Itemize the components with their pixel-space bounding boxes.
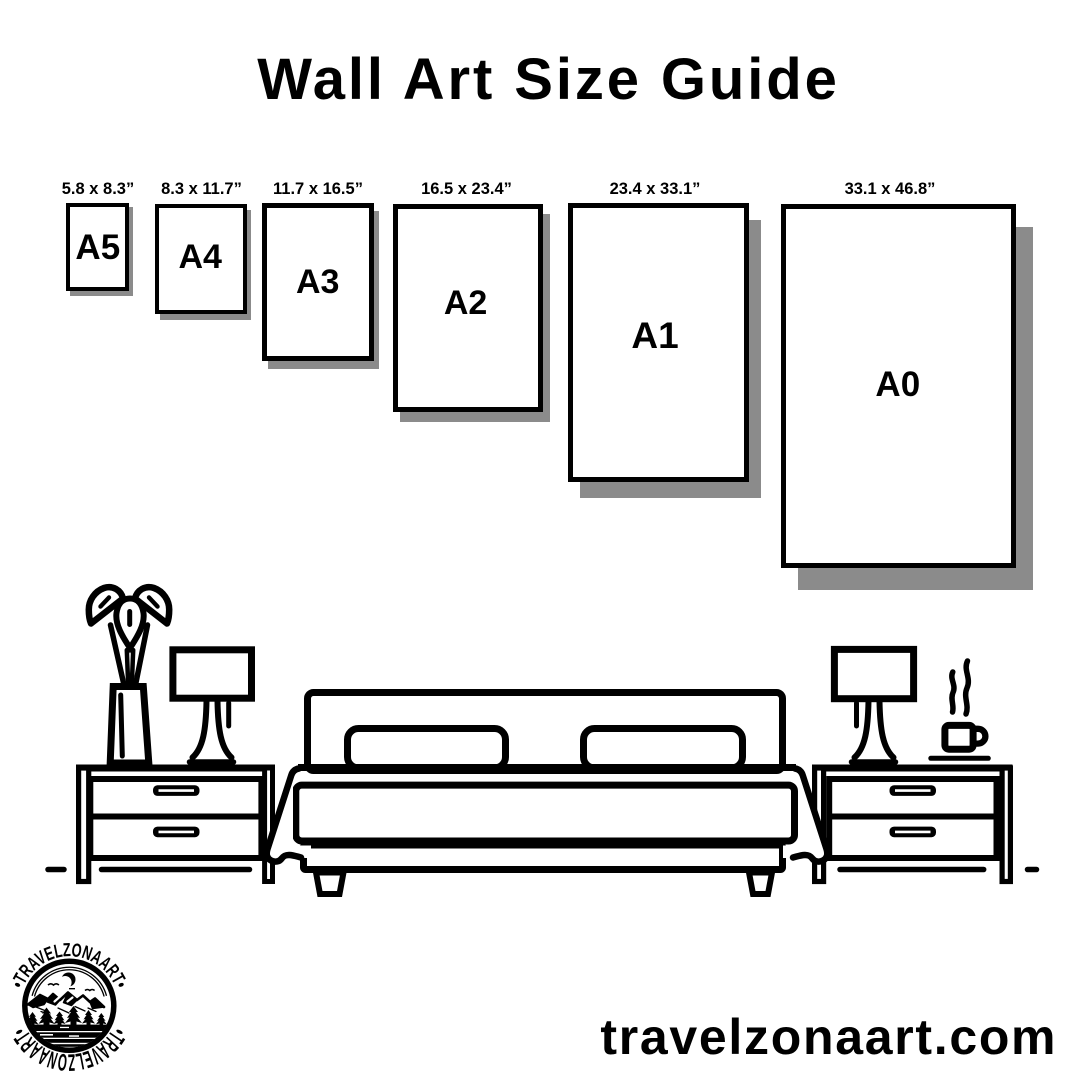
svg-text:•TRAVELZONAART•: •TRAVELZONAART•	[7, 1024, 132, 1076]
